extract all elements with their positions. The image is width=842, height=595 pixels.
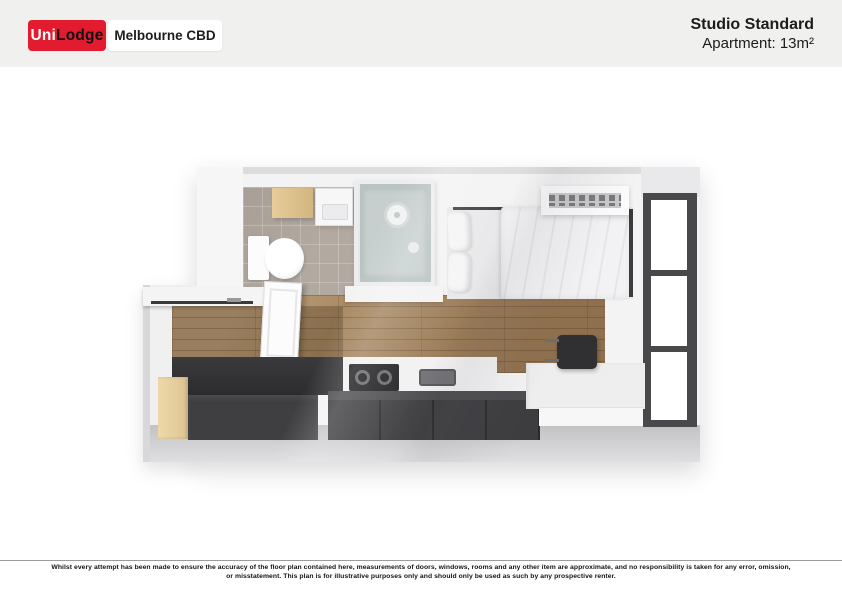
unilodge-logo: UniLodge [28, 20, 106, 51]
cooktop-burner-1 [355, 370, 370, 385]
kitchen-bench-top [172, 357, 343, 395]
logo-text-lodge: Lodge [56, 27, 104, 45]
kitchen-end-panel [158, 377, 188, 439]
plan-subtitle: Apartment: 13m² [690, 34, 814, 53]
shower-glass-edge [358, 184, 360, 282]
kitchen-sink [419, 369, 456, 386]
footer-divider [0, 560, 842, 561]
logo-text-uni: Uni [30, 27, 56, 45]
window-door [643, 193, 697, 427]
cooktop-burner-2 [377, 370, 392, 385]
window-pane-2 [651, 276, 687, 346]
entry-shelf-handle [227, 298, 241, 302]
bed-pillow-2 [447, 252, 471, 293]
shower-head [384, 202, 410, 228]
property-name-badge: Melbourne CBD [108, 20, 222, 51]
disclaimer-line-2: or misstatement. This plan is for illust… [0, 573, 842, 582]
plan-title: Studio Standard [690, 15, 814, 34]
entry-shelf [143, 287, 265, 306]
shower-drain [408, 242, 419, 253]
window-pane-3 [651, 352, 687, 420]
entry-door [260, 281, 302, 365]
disclaimer: Whilst every attempt has been made to en… [0, 564, 842, 581]
window-pane-1 [651, 200, 687, 270]
vanity-basin [315, 188, 353, 226]
shower-ledge [345, 286, 443, 302]
desk-step [539, 407, 643, 426]
chair-arm-2 [545, 359, 559, 362]
floor-plan-render [143, 167, 700, 462]
plan-title-block: Studio Standard Apartment: 13m² [690, 15, 814, 53]
outer-wall-top [197, 167, 700, 174]
annex-left-edge [143, 285, 150, 462]
chair-seat [557, 335, 597, 369]
property-name-label: Melbourne CBD [114, 28, 215, 43]
disclaimer-line-1: Whilst every attempt has been made to en… [0, 564, 842, 573]
bathroom-left-wall [197, 167, 243, 302]
chair-arm-1 [545, 339, 559, 342]
header-bar: UniLodge Melbourne CBD Studio Standard A… [0, 0, 842, 67]
bed-rail-right [629, 209, 633, 297]
toilet-bowl [265, 238, 304, 279]
shower-enclosure [354, 180, 435, 286]
wood-wall-shadow [172, 307, 343, 359]
bed-duvet [501, 207, 631, 299]
island-bench-front [328, 400, 540, 440]
island-bench-top [328, 391, 540, 400]
bathroom-cabinet [272, 188, 313, 218]
office-chair [541, 331, 599, 373]
kitchen-cabinet-front [188, 395, 318, 440]
ac-grille [549, 193, 621, 208]
ac-unit [541, 186, 629, 215]
cooktop [349, 364, 399, 391]
bed-pillow-1 [447, 211, 471, 252]
